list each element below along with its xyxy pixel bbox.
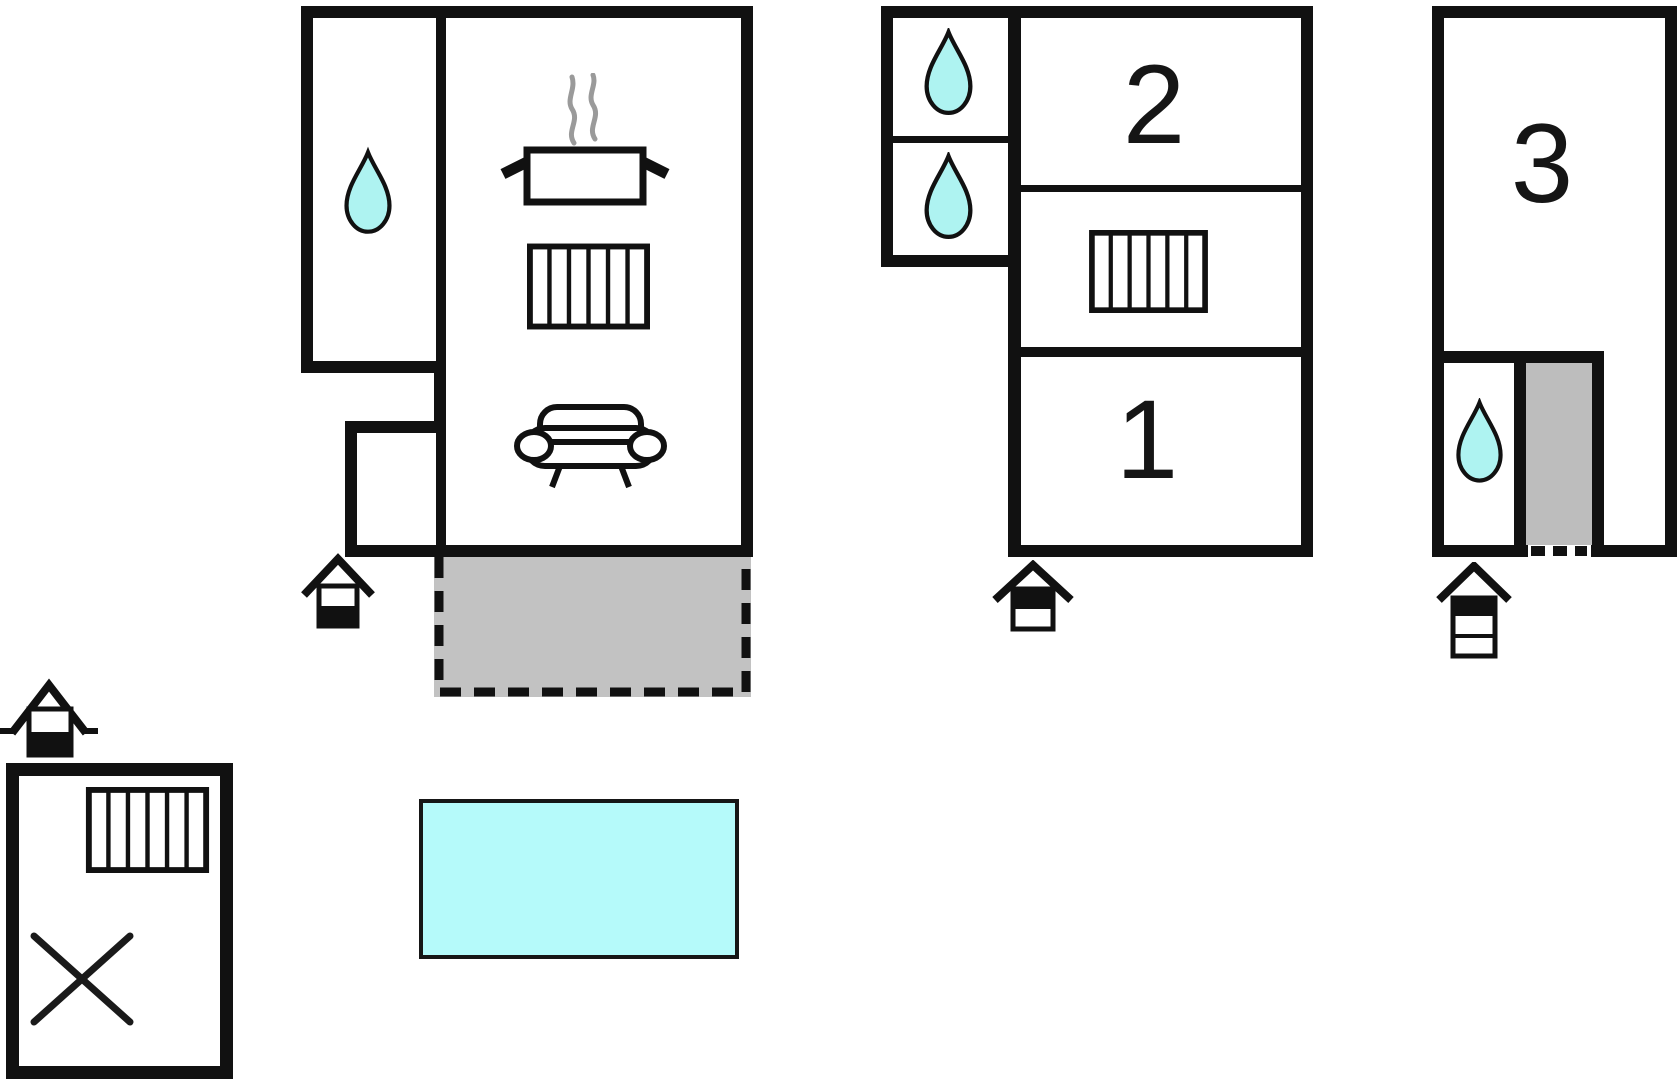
wall [301,361,446,373]
wall-divider [436,6,446,557]
entrance-icon [0,672,100,758]
water-drop-icon [340,145,396,240]
room-label-3: 3 [1482,109,1602,219]
door-dash [1575,546,1587,556]
water-drop-icon [920,28,977,118]
radiator-icon [85,787,210,873]
wall-divider [881,136,1021,143]
wall [741,6,753,557]
door-dash [1531,546,1545,556]
room-label-1: 1 [1087,385,1207,495]
wall [881,255,1021,267]
wall [1432,6,1444,557]
wall [1432,6,1677,18]
entrance-icon [300,553,376,633]
cooking-pot-icon [495,138,675,210]
stairs-area [1526,363,1592,545]
wall [1008,6,1021,557]
water-drop-icon [1452,398,1507,486]
wall-divider [1021,185,1301,192]
door-dash [1553,546,1567,556]
sofa-icon [514,402,667,492]
wall-divider [1021,347,1301,357]
floor-plan: 2 1 3 [0,0,1680,1080]
wall [345,545,753,557]
wall [881,6,1313,18]
room-label-2: 2 [1094,50,1214,160]
wall [1665,6,1677,557]
x-cross-icon [28,928,136,1028]
wall [1592,351,1604,557]
wall [345,421,357,557]
steam-icon [562,73,608,147]
entrance-icon [1435,562,1513,662]
entrance-icon [990,560,1076,632]
radiator-icon [1085,230,1212,313]
water-drop-icon [920,152,977,242]
wall [1301,6,1313,557]
wall [1514,351,1526,557]
terrace-area [434,557,751,697]
wall [345,421,446,433]
radiator-icon [527,243,650,330]
pool-area [419,799,739,959]
wall [301,6,753,18]
wall [1008,545,1313,557]
wall [301,6,313,373]
